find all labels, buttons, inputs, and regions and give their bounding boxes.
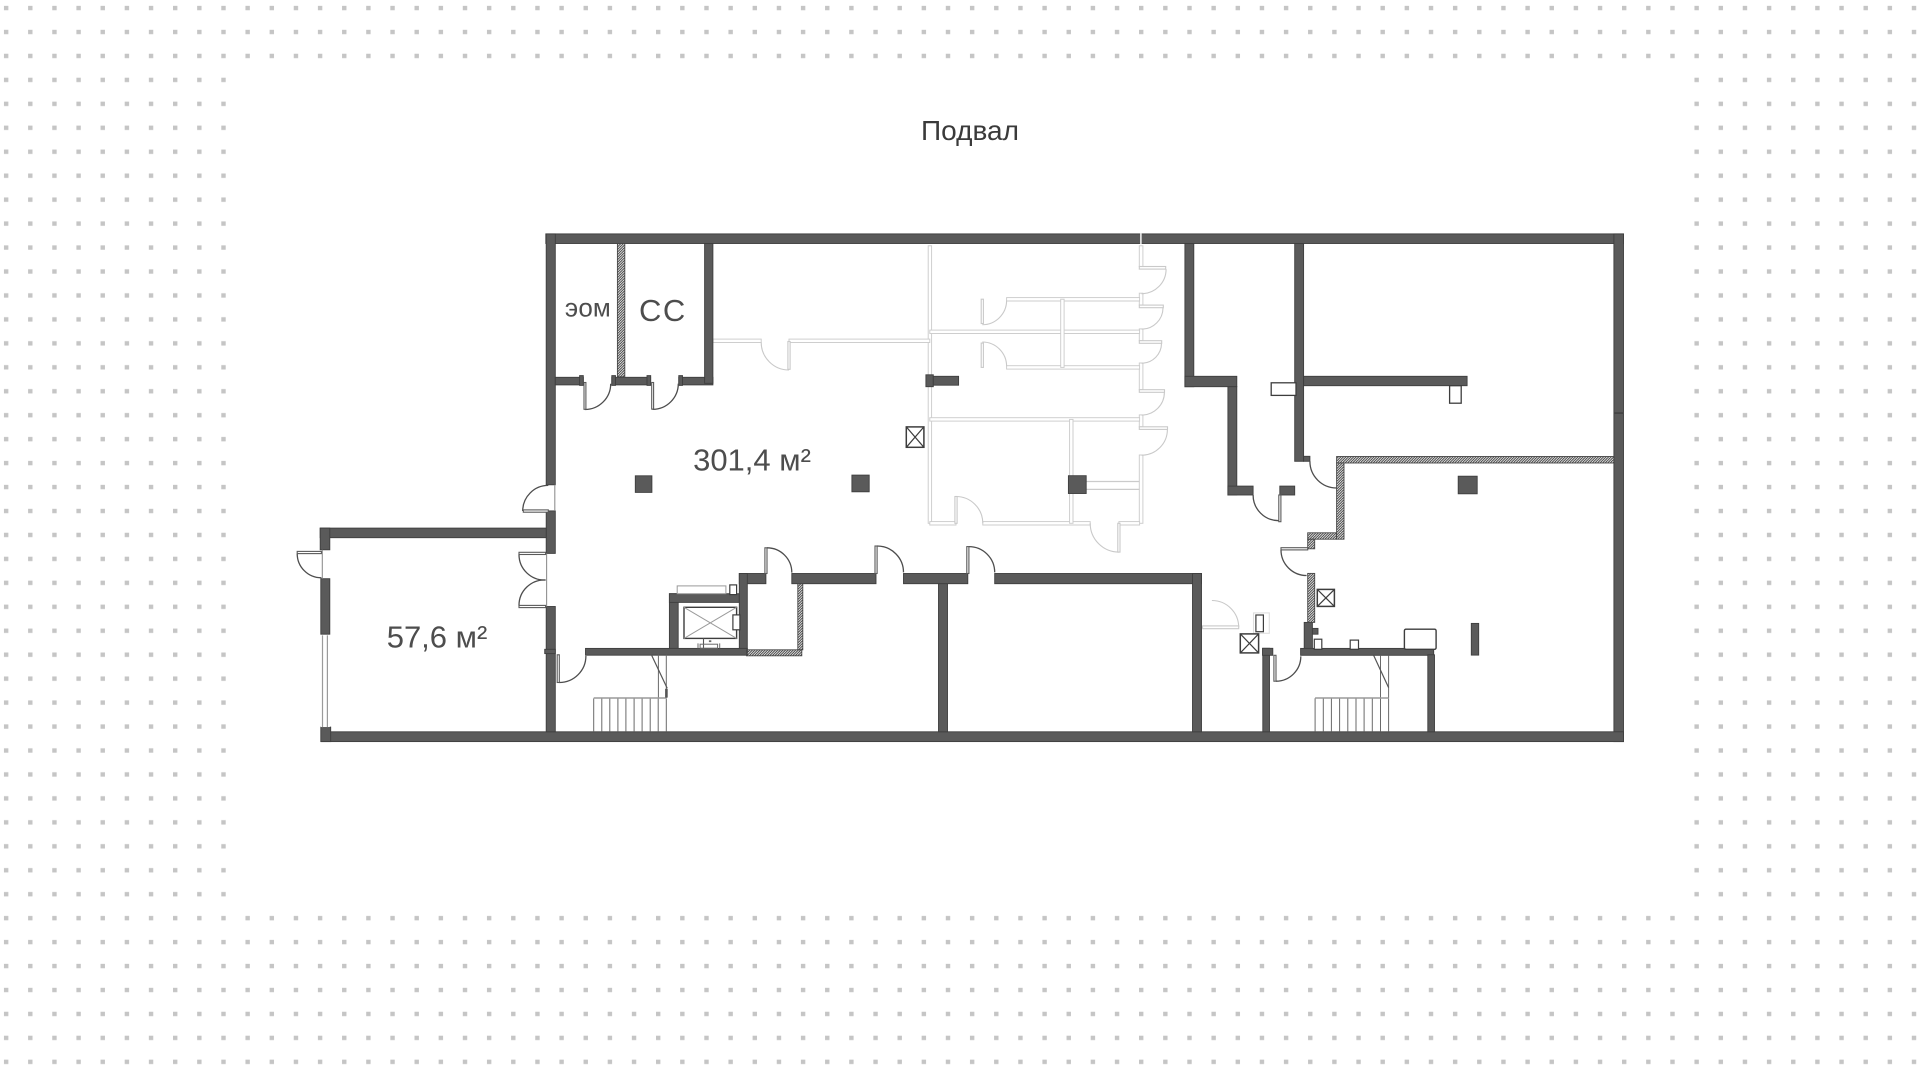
svg-text:Подвал: Подвал: [921, 115, 1019, 146]
svg-text:301,4 м²: 301,4 м²: [693, 443, 811, 478]
svg-text:57,6 м²: 57,6 м²: [387, 619, 488, 654]
svg-text:эом: эом: [565, 292, 611, 322]
svg-text:СС: СС: [639, 293, 687, 328]
